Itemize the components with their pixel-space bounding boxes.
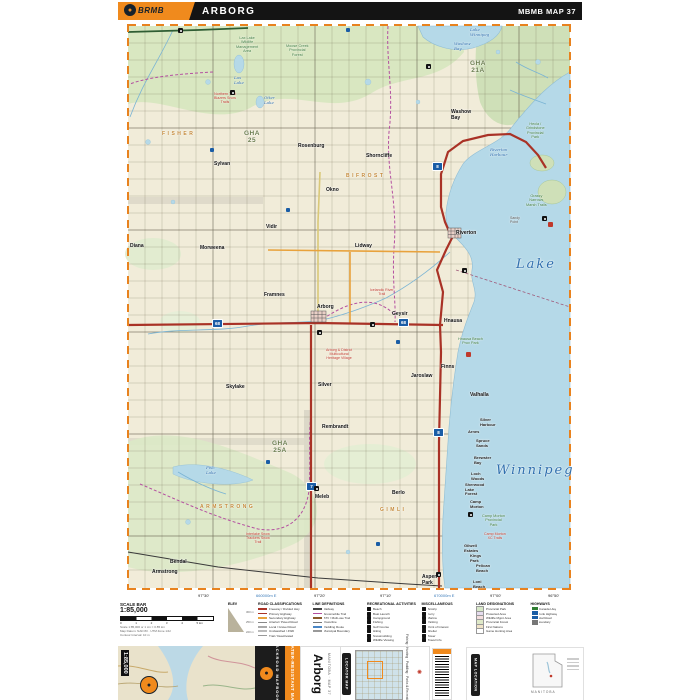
water-big-label: Lake [516, 258, 556, 273]
water-resistant-label: WATER-RESISTANT MAP [290, 641, 295, 700]
scale-ticks: 012345 km [120, 621, 216, 626]
scale-tick: 3 [166, 621, 168, 625]
map-ref: MBMB MAP 37 [518, 7, 576, 16]
map-location-tab: MAP LOCATION [471, 654, 480, 696]
legend-item-label: Shelter [428, 629, 438, 633]
poi-marker-icon [426, 64, 431, 69]
town-label: Armstrong [152, 570, 178, 576]
cover-water-resistant-strip: WATER-RESISTANT MAP [285, 646, 300, 700]
coordinate-label: 96°50' [548, 593, 559, 598]
town-label: Valhalla [470, 393, 489, 399]
legend-line-sample [258, 613, 267, 615]
trail-label: Arborg & District Multicultural Heritage… [326, 348, 352, 360]
poi-marker-icon [230, 90, 235, 95]
legend-column-title: MISCELLANEOUS [422, 602, 472, 606]
town-label: Geysir [392, 312, 408, 318]
trail-label: Interlake Snow Trackers Snow Trail [246, 532, 270, 544]
water-label: Lake Winnipeg [470, 28, 489, 37]
town-label: Berlo [392, 491, 405, 497]
highway-shield-68: 68 [398, 318, 409, 327]
maple-leaf-icon: ✺ [417, 669, 422, 676]
coordinate-label: 97°20' [314, 593, 325, 598]
cover-brmb-badge: ● [140, 676, 158, 694]
map-location-text [567, 656, 579, 672]
poi-marker-icon [462, 268, 467, 273]
cover-brand-text: BACKROAD MAPBOOKS [275, 641, 280, 700]
pt-label: Sandy Point [510, 216, 520, 224]
highway-shield-8: 8 [433, 428, 444, 437]
legend-icon-sample [367, 607, 371, 611]
legend-item-label: Beach [373, 607, 382, 611]
scale-tick: 2 [151, 621, 153, 625]
muni-label: GIMLI [380, 508, 406, 514]
map-sheet: ● BRMB ARBORG MBMB MAP 37 97°30'660000m … [118, 0, 582, 700]
legend-shield-sample [531, 619, 539, 626]
legend-columns: ROAD CLASSIFICATIONSFreeway / Divided Hw… [258, 602, 580, 640]
water-label: Riverton Harbour [490, 148, 507, 157]
legend-column: LAND DESIGNATIONSProvincial ParkProtecte… [476, 602, 526, 640]
legend-item-label: Trail / Deactivated [269, 634, 293, 638]
legend-item-label: Municipal Boundary [324, 629, 350, 633]
legend-item-label: Paddling Route [324, 625, 345, 629]
cover-map-art-panel: 1:85,000 ● [118, 646, 255, 700]
poi-marker-icon [314, 486, 319, 491]
barcode [435, 656, 449, 696]
cover-pin-icon: ● [260, 667, 273, 680]
legend-item-label: Tower [428, 634, 436, 638]
poi-marker-icon [370, 322, 375, 327]
legend-item-label: Primary Highway [269, 612, 292, 616]
legend-item-label: Point of Interest [428, 625, 449, 629]
legend-item-label: Parking [428, 620, 438, 624]
water-label: Lax Lake [234, 76, 244, 85]
legend-icon-sample [422, 638, 426, 642]
scale-fine-print: Scale 1:85,000 or 1 cm = 0.85 kmMap Datu… [120, 626, 224, 638]
legend-item-label: Campground [373, 616, 390, 620]
park-label: Camp Morton Provincial Park [482, 514, 505, 527]
town-label: Jaroslaw [411, 374, 432, 380]
coast-label: Silver Harbour [480, 418, 496, 427]
town-label: Finns [441, 365, 454, 371]
legend-icon-sample [422, 612, 426, 616]
coordinate-label: 670000m E [434, 593, 454, 598]
barcode-orange-strip [433, 649, 451, 654]
poi-marker-icon [178, 28, 183, 33]
legend-item-label: Ferry [428, 612, 435, 616]
park-label: Moose Creek Provincial Forest [286, 44, 309, 57]
legend-column: LINE DEFINITIONSRailwaySnowmobile TrailA… [313, 602, 363, 640]
poi-marker-icon [436, 572, 441, 577]
legend-line-sample [258, 608, 267, 610]
trail-marker-icon [376, 542, 380, 546]
legend-line-sample [313, 617, 322, 619]
scale-ratio: 1:85,000 [120, 607, 224, 614]
legend-line-sample [313, 626, 322, 628]
legend-item-label: Marina [428, 616, 437, 620]
brmb-logo: ● BRMB [124, 4, 164, 16]
legend-icon-sample [367, 638, 371, 642]
poi-marker-icon [542, 216, 547, 221]
legend-item-label: Game Hunting Area [486, 629, 512, 633]
legend-strip: SCALE BAR 1:85,000 012345 km Scale 1:85,… [118, 601, 582, 641]
locator-panel: LOCATOR MAP Fishing · Hunting · Paddling… [340, 646, 430, 700]
legend-column: ROAD CLASSIFICATIONSFreeway / Divided Hw… [258, 602, 308, 640]
map-pin-icon: ● [124, 4, 136, 16]
legend-item-label: Golf Course [373, 625, 389, 629]
legend-line-sample [313, 630, 322, 632]
town-label: Diana [130, 244, 144, 250]
legend-icon-sample [422, 634, 426, 638]
barcode-panel [432, 648, 452, 700]
coast-label: Arnes [468, 430, 479, 435]
scale-tick: 1 [135, 621, 137, 625]
park-label: Hnausa Beach Prov Park [458, 337, 483, 346]
park-marker-icon [548, 222, 553, 227]
coast-label: Pelican Beach [476, 564, 490, 573]
coast-label: Loni Beach [473, 580, 485, 589]
legend-item-label: Wildlife Mgmt Area [486, 616, 511, 620]
legend-item-label: Arterial / Paved Road [269, 620, 298, 624]
legend-icon-sample [422, 607, 426, 611]
town-label: Hnausa [444, 319, 462, 325]
trail-label: Camp Morton XC Trails [484, 532, 506, 540]
coast-label: Spruce Sands [476, 439, 490, 448]
header-bar: ● BRMB ARBORG MBMB MAP 37 [118, 2, 582, 20]
legend-column-title: ROAD CLASSIFICATIONS [258, 602, 308, 606]
legend-item: Travel Info [422, 638, 472, 642]
coast-label: Kings Park [470, 554, 481, 563]
trail-label: Icelandic River Trail [370, 288, 394, 296]
legend-item-label: Boat Launch [373, 612, 390, 616]
poi-marker-icon [468, 512, 473, 517]
locator-highlight-box [367, 661, 383, 679]
trail-marker-icon [286, 208, 290, 212]
park-label: Hecla / Grindstone Provincial Park [526, 122, 545, 139]
legend-column: HIGHWAYSTrans-Canada HwyProv Trunk Highw… [531, 602, 581, 640]
legend-icon-sample [367, 616, 371, 620]
town-label: Riverton [456, 231, 476, 237]
coast-label: Brewster Bay [474, 456, 491, 465]
legend-icon-sample [367, 612, 371, 616]
water-label: Washow Bay [454, 42, 471, 51]
legend-line-sample [258, 630, 267, 632]
town-label: Shorncliffe [366, 154, 392, 160]
legend-item: GHA Boundary [531, 620, 581, 624]
town-label: Lidway [355, 244, 372, 250]
manitoba-outline [529, 652, 565, 690]
muni-label: FISHER [162, 132, 195, 138]
elevation-block: ELEV 300 m 250 m 220 m [228, 602, 254, 640]
legend-icon-sample [367, 620, 371, 624]
town-label: Morweena [200, 246, 224, 252]
cover-scale-chip: 1:85,000 [121, 650, 129, 676]
legend-line-sample [258, 617, 267, 619]
gha-label: GHA 25 [244, 130, 260, 145]
muni-label: ARMSTRONG [200, 505, 255, 511]
water-label: Fish Lake [206, 466, 216, 475]
legend-line-sample [258, 622, 267, 624]
legend-item-label: Freeway / Divided Hwy [269, 607, 300, 611]
cover-map-art [118, 646, 255, 700]
legend-column: MISCELLANEOUSAirstripFerryMarinaParkingP… [422, 602, 472, 640]
town-label: Vidir [266, 225, 277, 231]
legend-item-label: Secondary Highway [269, 616, 296, 620]
elevation-mid: 250 m [246, 620, 254, 624]
park-marker-icon [466, 352, 471, 357]
legend-item-label: Airstrip [428, 607, 437, 611]
legend-line-sample [313, 613, 322, 615]
bottom-coordinates: 97°30'660000m E97°20'97°10'670000m E97°0… [118, 592, 582, 599]
cover-title: Arborg [311, 654, 325, 694]
town-label: Skylake [226, 385, 245, 391]
legend-item: Municipal Boundary [313, 629, 363, 633]
town-label: Okno [326, 188, 339, 194]
elevation-min: 220 m [246, 630, 254, 634]
legend-item-label: First Nations [486, 625, 503, 629]
coordinate-label: 97°10' [380, 593, 391, 598]
legend-item-label: Local / Gravel Road [269, 625, 296, 629]
legend-icon-sample [367, 629, 371, 633]
town-label: Rembrandt [322, 425, 348, 431]
legend-item: Trail / Deactivated [258, 633, 308, 637]
legend-icon-sample [367, 625, 371, 629]
town-label: Silver [318, 383, 332, 389]
highway-shield-68: 68 [212, 319, 223, 328]
coast-label: Loch Woods [471, 472, 484, 481]
elevation-wedge [228, 608, 244, 632]
legend-item-label: Provincial Park [486, 607, 506, 611]
scale-tick: 0 [120, 621, 122, 625]
legend-item-label: Railway [324, 607, 335, 611]
water-label: Otter Lake [264, 96, 275, 105]
legend-column-title: RECREATIONAL ACTIVITIES [367, 602, 417, 606]
water-big-label: Winnipeg [496, 464, 575, 479]
legend-item-label: Unclassified / 4WD [269, 629, 294, 633]
legend-item-label: Fishing [373, 620, 383, 624]
trail-marker-icon [346, 28, 350, 32]
legend-line-sample [258, 635, 267, 637]
cover-subtitle: MANITOBA · MAP 37 [327, 653, 331, 695]
coast-label: Sherwood Lake Forest [465, 483, 484, 497]
highway-shield-8: 8 [432, 162, 443, 171]
legend-item-label: Powerline [324, 620, 337, 624]
locator-tab: LOCATOR MAP [342, 653, 351, 695]
map-area: SylvanRosenburgShorncliffeOknoVidirLidwa… [118, 22, 582, 592]
legend-item-label: Provincial Forest [486, 620, 508, 624]
legend-icon-sample [422, 616, 426, 620]
town-label: Aspen Park [422, 575, 437, 587]
scale-tick: 4 [181, 621, 183, 625]
legend-column: RECREATIONAL ACTIVITIESBeachBoat LaunchC… [367, 602, 417, 640]
map-title: ARBORG [202, 6, 255, 17]
legend-icon-sample [367, 634, 371, 638]
legend-line-sample [258, 626, 267, 628]
poi-marker-icon [317, 330, 322, 335]
coordinate-label: 660000m E [256, 593, 276, 598]
cover-title-panel: Arborg MANITOBA · MAP 37 [300, 646, 342, 700]
legend-item-label: Snowmobiling [373, 634, 392, 638]
park-label: Lax Lake Wildlife Management Area [236, 36, 258, 53]
coordinate-label: 97°00' [490, 593, 501, 598]
page: ● BRMB ARBORG MBMB MAP 37 97°30'660000m … [0, 0, 700, 700]
town-label: Meleb [315, 495, 329, 501]
legend-column-title: LINE DEFINITIONS [313, 602, 363, 606]
town-label: Arborg [317, 305, 334, 311]
scale-tick: 5 km [197, 621, 204, 625]
legend-item-label: ATV / Multi-use Trail [324, 616, 351, 620]
brmb-logo-text: BRMB [138, 6, 164, 15]
town-label: Bendal [170, 560, 187, 566]
scale-bar-block: SCALE BAR 1:85,000 012345 km Scale 1:85,… [120, 602, 224, 640]
muni-label: BIFROST [346, 174, 385, 180]
legend-line-sample [313, 608, 322, 610]
gha-label: GHA 21A [470, 60, 486, 75]
coast-label: Gilwell Estates [464, 544, 478, 553]
legend-item: Wildlife Viewing [367, 638, 417, 642]
legend-item: Game Hunting Area [476, 629, 526, 633]
town-label: Sylvan [214, 162, 230, 168]
cover-features: Fishing · Hunting · Paddling · Parks & R… [405, 649, 409, 699]
elevation-max: 300 m [246, 610, 254, 614]
province-label: MANITOBA [531, 690, 556, 694]
legend-item-label: Travel Info [428, 638, 442, 642]
legend-icon-sample [422, 629, 426, 633]
legend-item-label: Protected Area [486, 612, 506, 616]
legend-icon-sample [422, 625, 426, 629]
legend-icon-sample [422, 620, 426, 624]
footer-cover-strip: 1:85,000 ● ● BACKROAD MAPBOOKS WATER-RES… [118, 646, 582, 700]
fine-print-line: Contour Interval: 10 m [120, 634, 224, 638]
map-labels-layer: SylvanRosenburgShorncliffeOknoVidirLidwa… [118, 22, 582, 592]
legend-item-label: Snowmobile Trail [324, 612, 347, 616]
legend-item-label: Wildlife Viewing [373, 638, 394, 642]
elevation-title: ELEV [228, 602, 254, 606]
trail-marker-icon [266, 460, 270, 464]
gha-label: GHA 25A [272, 440, 288, 455]
trail-marker-icon [210, 148, 214, 152]
legend-item-label: Hiking [373, 629, 381, 633]
town-label: Framnes [264, 293, 285, 299]
cover-brand-panel: ● BACKROAD MAPBOOKS [255, 646, 285, 700]
coordinate-label: 97°30' [198, 593, 209, 598]
town-label: Washow Bay [451, 110, 471, 122]
coast-label: Camp Morton [470, 500, 484, 509]
park-label: Grassy Narrows Marsh Trails [526, 194, 547, 207]
town-label: Rosenburg [298, 144, 324, 150]
trail-marker-icon [396, 340, 400, 344]
legend-line-sample [313, 622, 322, 624]
map-location-panel: MAP LOCATION MANITOBA [466, 647, 584, 700]
legend-swatch-sample [476, 628, 484, 634]
